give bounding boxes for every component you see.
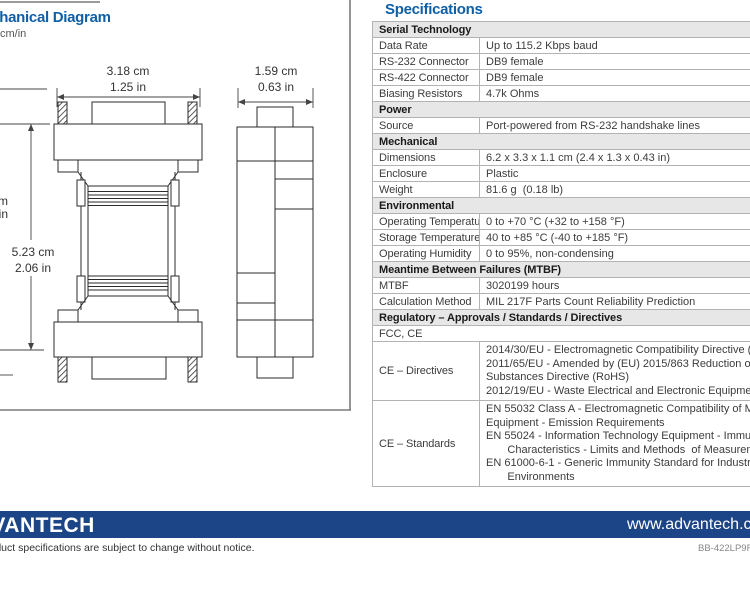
- spec-value: Plastic: [480, 166, 518, 181]
- footer-website-link[interactable]: www.advantech.com: [627, 516, 750, 534]
- front-bottom-flange: [54, 322, 202, 357]
- dim-front-height-cm: 5.23 cm: [12, 245, 55, 259]
- spec-row: Calculation MethodMIL 217F Parts Count R…: [373, 293, 750, 309]
- advantech-logo: ADVANTECH: [0, 514, 95, 538]
- spec-row: Data RateUp to 115.2 Kbps baud: [373, 37, 750, 53]
- spec-label: MTBF: [373, 278, 480, 293]
- spec-label: RS-232 Connector: [373, 54, 480, 69]
- spec-section-label: Environmental: [373, 198, 454, 213]
- spec-value: EN 55032 Class A - Electromagnetic Compa…: [480, 401, 750, 486]
- datasheet-page: 3.18 cm 1.25 in 1.59 cm 0.63 in 5.23 cm …: [0, 0, 750, 591]
- spec-row: Dimensions6.2 x 3.3 x 1.1 cm (2.4 x 1.3 …: [373, 149, 750, 165]
- spec-label: Enclosure: [373, 166, 480, 181]
- spec-section-row: Meantime Between Failures (MTBF): [373, 261, 750, 277]
- spec-row: Operating Temperature0 to +70 °C (+32 to…: [373, 213, 750, 229]
- spec-row: FCC, CE: [373, 325, 750, 341]
- spec-section-row: Serial Technology: [373, 21, 750, 37]
- specifications-title: Specifications: [385, 1, 483, 18]
- spec-row: Weight81.6 g (0.18 lb): [373, 181, 750, 197]
- dim-front-height-in: 2.06 in: [15, 261, 51, 275]
- front-top-left-screw: [58, 102, 67, 124]
- spec-row: EnclosurePlastic: [373, 165, 750, 181]
- front-view: [54, 102, 202, 382]
- spec-value: 81.6 g (0.18 lb): [480, 182, 563, 197]
- spec-label: CE – Directives: [373, 342, 480, 400]
- spec-value: Up to 115.2 Kbps baud: [480, 38, 598, 53]
- dim-side-width-cm: 1.59 cm: [255, 64, 298, 78]
- spec-section-row: Power: [373, 101, 750, 117]
- spec-row: CE – StandardsEN 55032 Class A - Electro…: [373, 400, 750, 486]
- spec-value: 4.7k Ohms: [480, 86, 539, 101]
- front-bottom-connector: [92, 357, 166, 379]
- spec-label: Operating Humidity: [373, 246, 480, 261]
- front-top-connector: [92, 102, 165, 124]
- spec-value: Port-powered from RS-232 handshake lines: [480, 118, 700, 133]
- front-bottom-right-screw: [188, 357, 197, 382]
- spec-label: Data Rate: [373, 38, 480, 53]
- spec-label: RS-422 Connector: [373, 70, 480, 85]
- dim-front-width-in: 1.25 in: [110, 80, 146, 94]
- spec-label: CE – Standards: [373, 401, 480, 486]
- spec-value: 40 to +85 °C (-40 to +185 °F): [480, 230, 628, 245]
- spec-value: 6.2 x 3.3 x 1.1 cm (2.4 x 1.3 x 0.43 in): [480, 150, 670, 165]
- side-view: [237, 107, 313, 378]
- spec-section-label: Power: [373, 102, 412, 117]
- dim-front-width-cm: 3.18 cm: [107, 64, 150, 78]
- spec-label: Dimensions: [373, 150, 480, 165]
- spec-label: Biasing Resistors: [373, 86, 480, 101]
- spec-section-label: Mechanical: [373, 134, 437, 149]
- spec-label: Source: [373, 118, 480, 133]
- spec-section-label: Regulatory – Approvals / Standards / Dir…: [373, 310, 622, 325]
- spec-label: FCC, CE: [373, 326, 422, 341]
- diagram-units-label: cm/in: [0, 28, 26, 40]
- spec-section-row: Regulatory – Approvals / Standards / Dir…: [373, 309, 750, 325]
- spec-section-row: Environmental: [373, 197, 750, 213]
- spec-value: 3020199 hours: [480, 278, 559, 293]
- spec-label: Weight: [373, 182, 480, 197]
- spec-row: Operating Humidity0 to 95%, non-condensi…: [373, 245, 750, 261]
- front-bottom-left-screw: [58, 357, 67, 382]
- spec-value: 0 to 95%, non-condensing: [480, 246, 614, 261]
- spec-label: Calculation Method: [373, 294, 480, 309]
- front-top-right-screw: [188, 102, 197, 124]
- front-right-latch: [171, 180, 179, 206]
- spec-row: RS-422 ConnectorDB9 female: [373, 69, 750, 85]
- spec-section-label: Serial Technology: [373, 22, 471, 37]
- spec-value: DB9 female: [480, 70, 543, 85]
- spec-value: 2014/30/EU - Electromagnetic Compatibili…: [480, 342, 750, 400]
- side-bottom-connector: [257, 357, 293, 378]
- footer-doc-code: BB-422LP9R_: [698, 543, 750, 554]
- spec-row: Storage Temperature40 to +85 °C (-40 to …: [373, 229, 750, 245]
- spec-label: Operating Temperature: [373, 214, 480, 229]
- dim-side-width-in: 0.63 in: [258, 80, 294, 94]
- footer-disclaimer: Product specifications are subject to ch…: [0, 542, 255, 554]
- spec-section-label: Meantime Between Failures (MTBF): [373, 262, 561, 277]
- spec-row: RS-232 ConnectorDB9 female: [373, 53, 750, 69]
- dim-left-cut-in: in: [0, 207, 8, 221]
- spec-value: DB9 female: [480, 54, 543, 69]
- spec-row: MTBF3020199 hours: [373, 277, 750, 293]
- front-left-latch: [77, 180, 85, 206]
- front-top-flange: [54, 124, 202, 160]
- spec-table: Serial TechnologyData RateUp to 115.2 Kb…: [372, 21, 750, 487]
- spec-row: Biasing Resistors4.7k Ohms: [373, 85, 750, 101]
- spec-value: 0 to +70 °C (+32 to +158 °F): [480, 214, 625, 229]
- spec-section-row: Mechanical: [373, 133, 750, 149]
- mechanical-diagram: 3.18 cm 1.25 in 1.59 cm 0.63 in 5.23 cm …: [0, 0, 352, 413]
- spec-row: CE – Directives2014/30/EU - Electromagne…: [373, 341, 750, 400]
- spec-row: SourcePort-powered from RS-232 handshake…: [373, 117, 750, 133]
- dim-left-cut-cm: cm: [0, 194, 8, 208]
- spec-label: Storage Temperature: [373, 230, 480, 245]
- side-top-connector: [257, 107, 293, 127]
- spec-value: MIL 217F Parts Count Reliability Predict…: [480, 294, 695, 309]
- mechanical-diagram-title: Mechanical Diagram: [0, 9, 111, 26]
